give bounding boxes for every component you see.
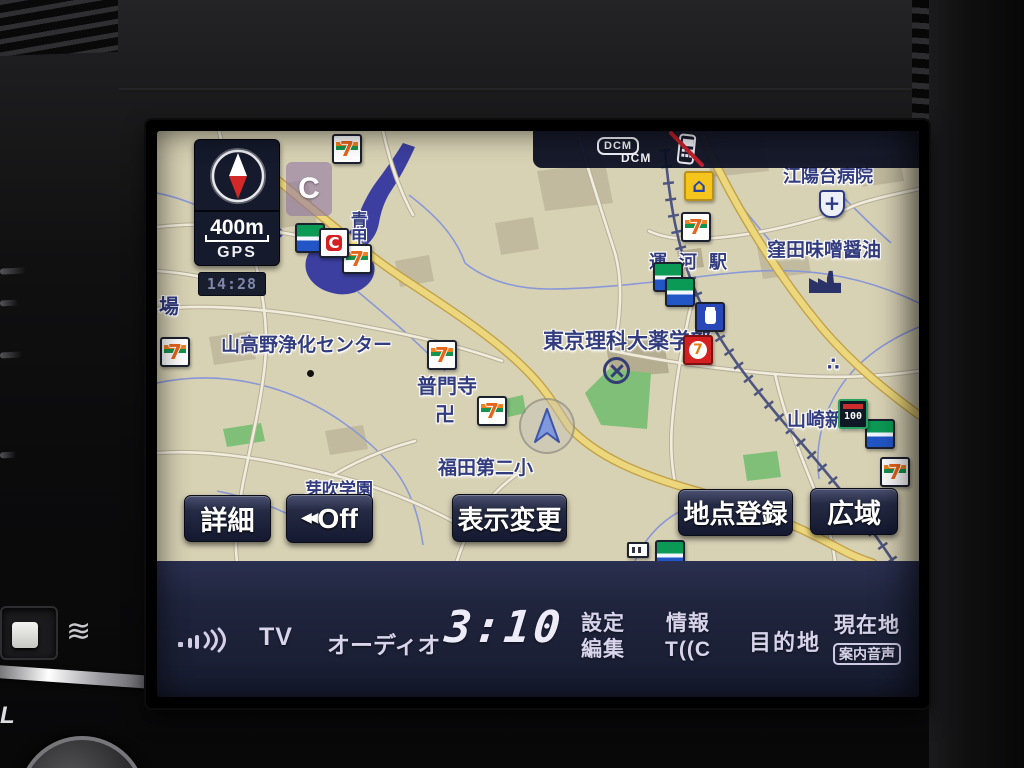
beep-volume-icon[interactable] [177, 627, 233, 653]
dashboard: L [0, 0, 1024, 768]
dash-left-letter: L [0, 702, 15, 730]
seven-eleven-icon [681, 212, 711, 242]
seat-heater-switch[interactable] [0, 606, 58, 660]
c-indicator-badge: C [286, 162, 332, 216]
familymart-icon [665, 277, 695, 307]
info-line: 情報 [665, 611, 711, 637]
seven-eleven-icon [160, 337, 190, 367]
display-change-label: 表示変更 [457, 500, 561, 537]
switch-button[interactable] [12, 622, 38, 648]
clipped-poi-icon [627, 542, 649, 558]
compass-scale-panel[interactable]: 400m GPS [194, 139, 280, 266]
rotary-knob[interactable] [18, 736, 146, 768]
detail-zoom-button[interactable]: 詳細 [184, 495, 271, 542]
nav-screen: 江陽台病院 窪田味噌醤油 運河駅 東京理科大薬学部 山高野浄化センター 場 普門… [157, 131, 919, 697]
familymart-icon [865, 419, 895, 449]
hospital-icon [819, 190, 845, 218]
register-point-label: 地点登録 [683, 494, 787, 531]
wide-area-label: 広域 [827, 492, 881, 531]
compass-rose-icon[interactable] [195, 140, 279, 212]
edit-line: 編集 [581, 637, 625, 663]
current-location-label: 現在地 [833, 609, 901, 639]
factory-icon [809, 269, 841, 293]
gps-status: GPS [217, 242, 257, 264]
map-label-ba: 場 [159, 296, 179, 318]
destination-key[interactable]: 目的地 [749, 625, 821, 657]
off-label: Off [318, 503, 358, 535]
map-label-soy-factory: 窪田味噌醤油 [767, 241, 881, 262]
seat-ventilation-icon [66, 612, 106, 652]
map-label-vertical-place: 青甲 [347, 211, 366, 245]
hardkey-bar: TV オーディオ 3:10 設定 編集 情報 T((C 目的地 現在地 案内音声 [157, 561, 919, 697]
tc-line: T((C [665, 637, 711, 663]
trim-highlight [0, 452, 16, 459]
guidance-voice-label: 案内音声 [833, 643, 901, 665]
air-vent-top-left [0, 0, 118, 56]
red-seven-icon [683, 335, 713, 365]
lawson-store-100-icon [838, 399, 868, 429]
map-label-purification-center: 山高野浄化センター [221, 336, 392, 357]
seven-eleven-icon [427, 340, 457, 370]
register-point-button[interactable]: 地点登録 [678, 489, 793, 536]
seven-eleven-icon [477, 396, 507, 426]
map-canvas[interactable]: 江陽台病院 窪田味噌醤油 運河駅 東京理科大薬学部 山高野浄化センター 場 普門… [157, 131, 919, 561]
detail-zoom-label: 詳細 [201, 499, 255, 538]
ministop-icon [684, 171, 714, 201]
current-position-marker [519, 398, 575, 454]
dash-trim-right [929, 0, 1024, 768]
position-arrow-icon [521, 400, 573, 452]
wide-area-button[interactable]: 広域 [810, 488, 898, 535]
survey-point-dot-icon [307, 370, 314, 377]
map-label-historic-site-mark: ∴ [827, 355, 840, 375]
tv-key[interactable]: TV [259, 623, 293, 652]
trim-highlight [0, 300, 18, 307]
scale-value: 400m [205, 216, 269, 242]
settings-line: 設定 [581, 611, 625, 637]
dash-ridge [118, 88, 912, 92]
display-change-button[interactable]: 表示変更 [452, 494, 567, 542]
info-traffic-key[interactable]: 情報 T((C [665, 611, 711, 663]
status-strip: DCM DCM [533, 131, 919, 168]
university-mark-icon [603, 357, 630, 384]
trim-highlight [0, 351, 22, 358]
circle-c-store-icon [319, 228, 349, 258]
audio-key[interactable]: オーディオ [327, 626, 440, 660]
map-scale-display[interactable]: 400m GPS [195, 214, 279, 265]
current-location-key[interactable]: 現在地 案内音声 [833, 609, 901, 665]
trim-highlight [0, 267, 26, 274]
settings-edit-key[interactable]: 設定 編集 [581, 611, 625, 663]
dcm-label: DCM [621, 151, 651, 165]
seven-eleven-icon [332, 134, 362, 164]
off-button[interactable]: ◀◀ Off [286, 494, 373, 543]
map-label-hospital-name: 江陽台病院 [783, 167, 873, 187]
phone-disconnected-icon [665, 131, 707, 168]
map-label-fumonji-temple: 普門寺 [417, 376, 477, 398]
familymart-icon [655, 540, 685, 561]
map-label-temple-manji: 卍 [435, 404, 455, 426]
rewind-arrows-icon: ◀◀ [301, 509, 315, 528]
lawson-icon [695, 302, 725, 332]
map-clock-chip: 14:28 [198, 272, 266, 296]
seven-eleven-icon [880, 457, 910, 487]
map-label-elementary-school: 福田第二小 [438, 459, 533, 480]
clock-display: 3:10 [443, 605, 566, 651]
